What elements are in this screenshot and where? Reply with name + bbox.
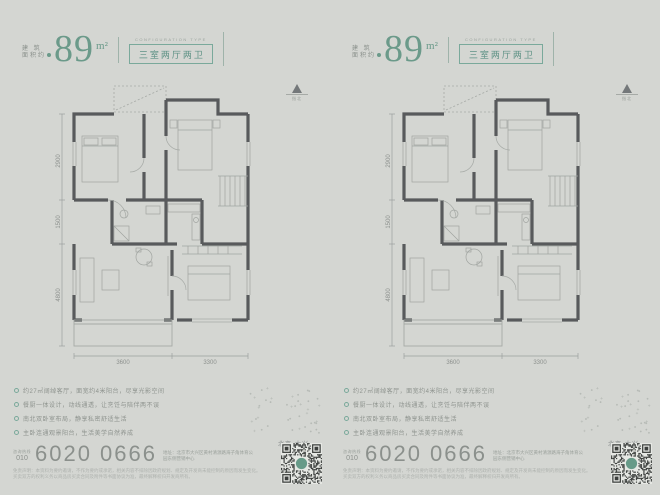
bullet-icon xyxy=(14,402,19,407)
north-arrow-label: 指北 xyxy=(286,94,308,102)
disclaimer-line: 买卖双方的权利义务以商品房买卖合同及附件等书面协议为准，最终解释权归开发商所有。 xyxy=(13,474,275,480)
panel-header: 建 筑 面积约 89 m² CONFIGURATION TYPE 三室两厅两卫 xyxy=(22,26,234,66)
feature-item: 南北双卧室布局，静享私密舒适生活 xyxy=(344,414,574,423)
area-label-line1: 建 筑 xyxy=(352,46,381,53)
contact-row: 咨询热线 010 6020 0666 地址：北京市大兴区黄村清源路海子角体育公园… xyxy=(13,443,255,465)
area-label: 建 筑 面积约 xyxy=(22,46,51,60)
feature-item: 约27㎡阔绰客厅，面宽约4米阳台，尽享光影空间 xyxy=(344,386,574,395)
disclaimer-line: 免责声明：本资料为要约邀请，不作为要约或承诺，相关内容不排除因政府规划、规定及开… xyxy=(13,468,275,474)
hotline-block: 咨询热线 010 xyxy=(13,449,31,462)
bullet-icon xyxy=(14,430,19,435)
feature-item: 餐厨一体设计，动线通透，让烹饪与陪伴两不误 xyxy=(344,400,574,409)
flyer-canvas: 建 筑 面积约 89 m² CONFIGURATION TYPE 三室两厅两卫 … xyxy=(0,0,660,495)
bullet-icon xyxy=(14,388,19,393)
feature-item: 主卧连通观景阳台，生活美学自然养成 xyxy=(14,428,244,437)
phone-number: 6020 0666 xyxy=(35,443,157,465)
header-divider-1 xyxy=(118,37,119,63)
panel-header: 建 筑 面积约 89 m² CONFIGURATION TYPE 三室两厅两卫 xyxy=(352,26,564,66)
bullet-icon xyxy=(344,388,349,393)
type-block: CONFIGURATION TYPE 三室两厅两卫 xyxy=(459,37,543,64)
disclaimer: 免责声明：本资料为要约邀请，不作为要约或承诺，相关内容不排除因政府规划、规定及开… xyxy=(343,468,605,479)
decorative-dot-motif xyxy=(578,386,652,438)
phone-number: 6020 0666 xyxy=(365,443,487,465)
north-arrow: 指北 xyxy=(616,84,638,102)
bullet-icon xyxy=(344,402,349,407)
floorplan-drawing xyxy=(382,80,594,368)
bullet-icon xyxy=(344,430,349,435)
bullet-icon xyxy=(344,416,349,421)
qr-code xyxy=(611,443,652,484)
floorplan-drawing xyxy=(52,80,264,368)
area-label-line1: 建 筑 xyxy=(22,46,51,53)
green-dot-icon xyxy=(377,53,381,57)
type-caption-en: CONFIGURATION TYPE xyxy=(465,37,537,42)
area-unit: m² xyxy=(96,40,108,52)
area-label-line2: 面积约 xyxy=(352,53,381,60)
feature-item: 主卧连通观景阳台，生活美学自然养成 xyxy=(344,428,574,437)
green-dot-icon xyxy=(47,53,51,57)
address-text: 地址：北京市大兴区黄村清源路海子角体育公园东侧营销中心 xyxy=(163,450,255,461)
area-value: 89 xyxy=(384,32,424,66)
disclaimer-line: 买卖双方的权利义务以商品房买卖合同及附件等书面协议为准，最终解释权归开发商所有。 xyxy=(343,474,605,480)
floorplan-panel-left: 建 筑 面积约 89 m² CONFIGURATION TYPE 三室两厅两卫 … xyxy=(0,0,330,495)
area-label-line2: 面积约 xyxy=(22,53,51,60)
header-divider-2 xyxy=(223,32,224,66)
area-code: 010 xyxy=(13,455,31,462)
area-unit: m² xyxy=(426,40,438,52)
header-divider-1 xyxy=(448,37,449,63)
north-arrow-icon xyxy=(622,84,632,93)
feature-item: 餐厨一体设计，动线通透，让烹饪与陪伴两不误 xyxy=(14,400,244,409)
area-label: 建 筑 面积约 xyxy=(352,46,381,60)
north-arrow-label: 指北 xyxy=(616,94,638,102)
area-value: 89 xyxy=(54,32,94,66)
disclaimer: 免责声明：本资料为要约邀请，不作为要约或承诺，相关内容不排除因政府规划、规定及开… xyxy=(13,468,275,479)
type-name-cn: 三室两厅两卫 xyxy=(459,44,543,64)
floorplan-panel-right: 建 筑 面积约 89 m² CONFIGURATION TYPE 三室两厅两卫 … xyxy=(330,0,660,495)
feature-item: 南北双卧室布局，静享私密舒适生活 xyxy=(14,414,244,423)
contact-row: 咨询热线 010 6020 0666 地址：北京市大兴区黄村清源路海子角体育公园… xyxy=(343,443,585,465)
qr-code xyxy=(281,443,322,484)
bullet-icon xyxy=(14,416,19,421)
north-arrow: 指北 xyxy=(286,84,308,102)
type-block: CONFIGURATION TYPE 三室两厅两卫 xyxy=(129,37,213,64)
header-divider-2 xyxy=(553,32,554,66)
type-caption-en: CONFIGURATION TYPE xyxy=(135,37,207,42)
address-text: 地址：北京市大兴区黄村清源路海子角体育公园东侧营销中心 xyxy=(493,450,585,461)
feature-list: 约27㎡阔绰客厅，面宽约4米阳台，尽享光影空间 餐厨一体设计，动线通透，让烹饪与… xyxy=(14,386,244,442)
area-code: 010 xyxy=(343,455,361,462)
north-arrow-icon xyxy=(292,84,302,93)
hotline-block: 咨询热线 010 xyxy=(343,449,361,462)
feature-list: 约27㎡阔绰客厅，面宽约4米阳台，尽享光影空间 餐厨一体设计，动线通透，让烹饪与… xyxy=(344,386,574,442)
disclaimer-line: 免责声明：本资料为要约邀请，不作为要约或承诺，相关内容不排除因政府规划、规定及开… xyxy=(343,468,605,474)
feature-item: 约27㎡阔绰客厅，面宽约4米阳台，尽享光影空间 xyxy=(14,386,244,395)
type-name-cn: 三室两厅两卫 xyxy=(129,44,213,64)
decorative-dot-motif xyxy=(248,386,322,438)
